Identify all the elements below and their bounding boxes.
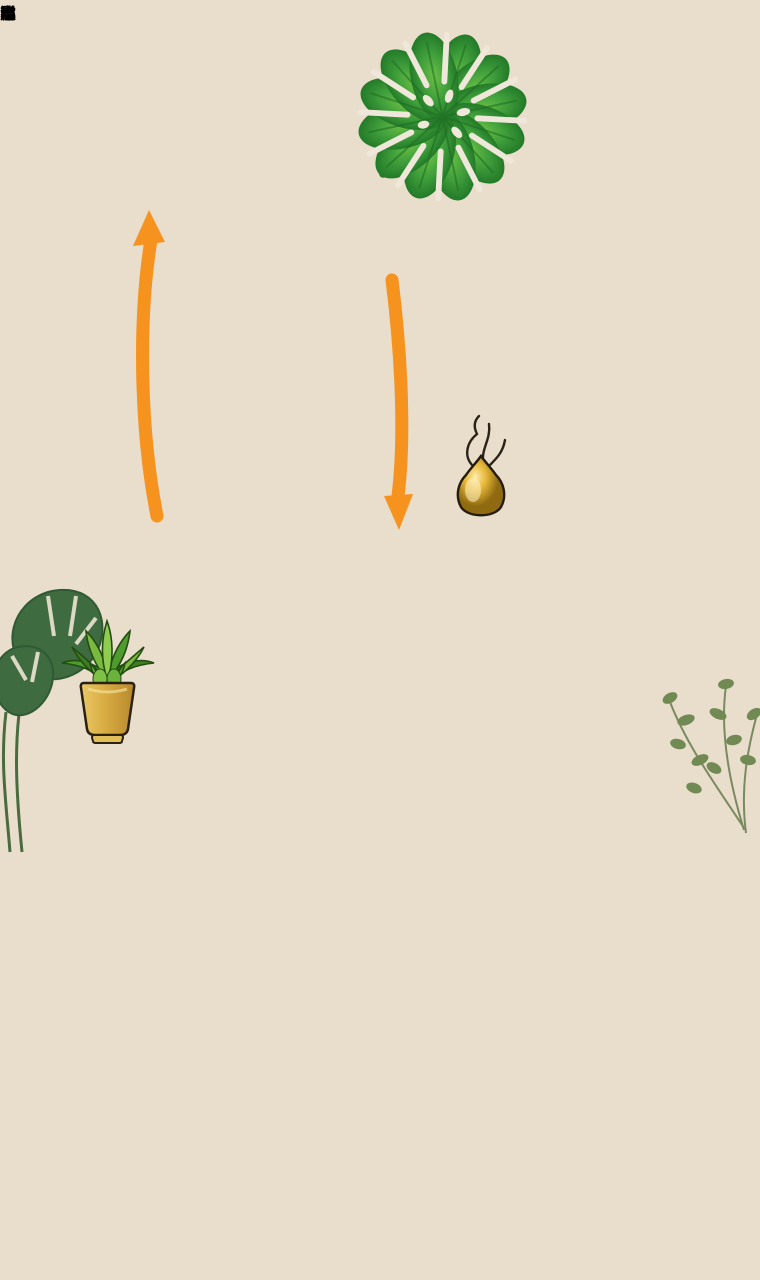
down-arrow-head bbox=[384, 494, 413, 530]
up-arrow-shaft bbox=[143, 240, 157, 516]
down-arrow-shaft bbox=[392, 280, 402, 496]
screenshot-root: 沁 泣 bbox=[0, 0, 760, 1280]
flow-arrows bbox=[0, 0, 549, 782]
branch-plant bbox=[648, 668, 760, 908]
up-arrow-head bbox=[133, 210, 165, 246]
